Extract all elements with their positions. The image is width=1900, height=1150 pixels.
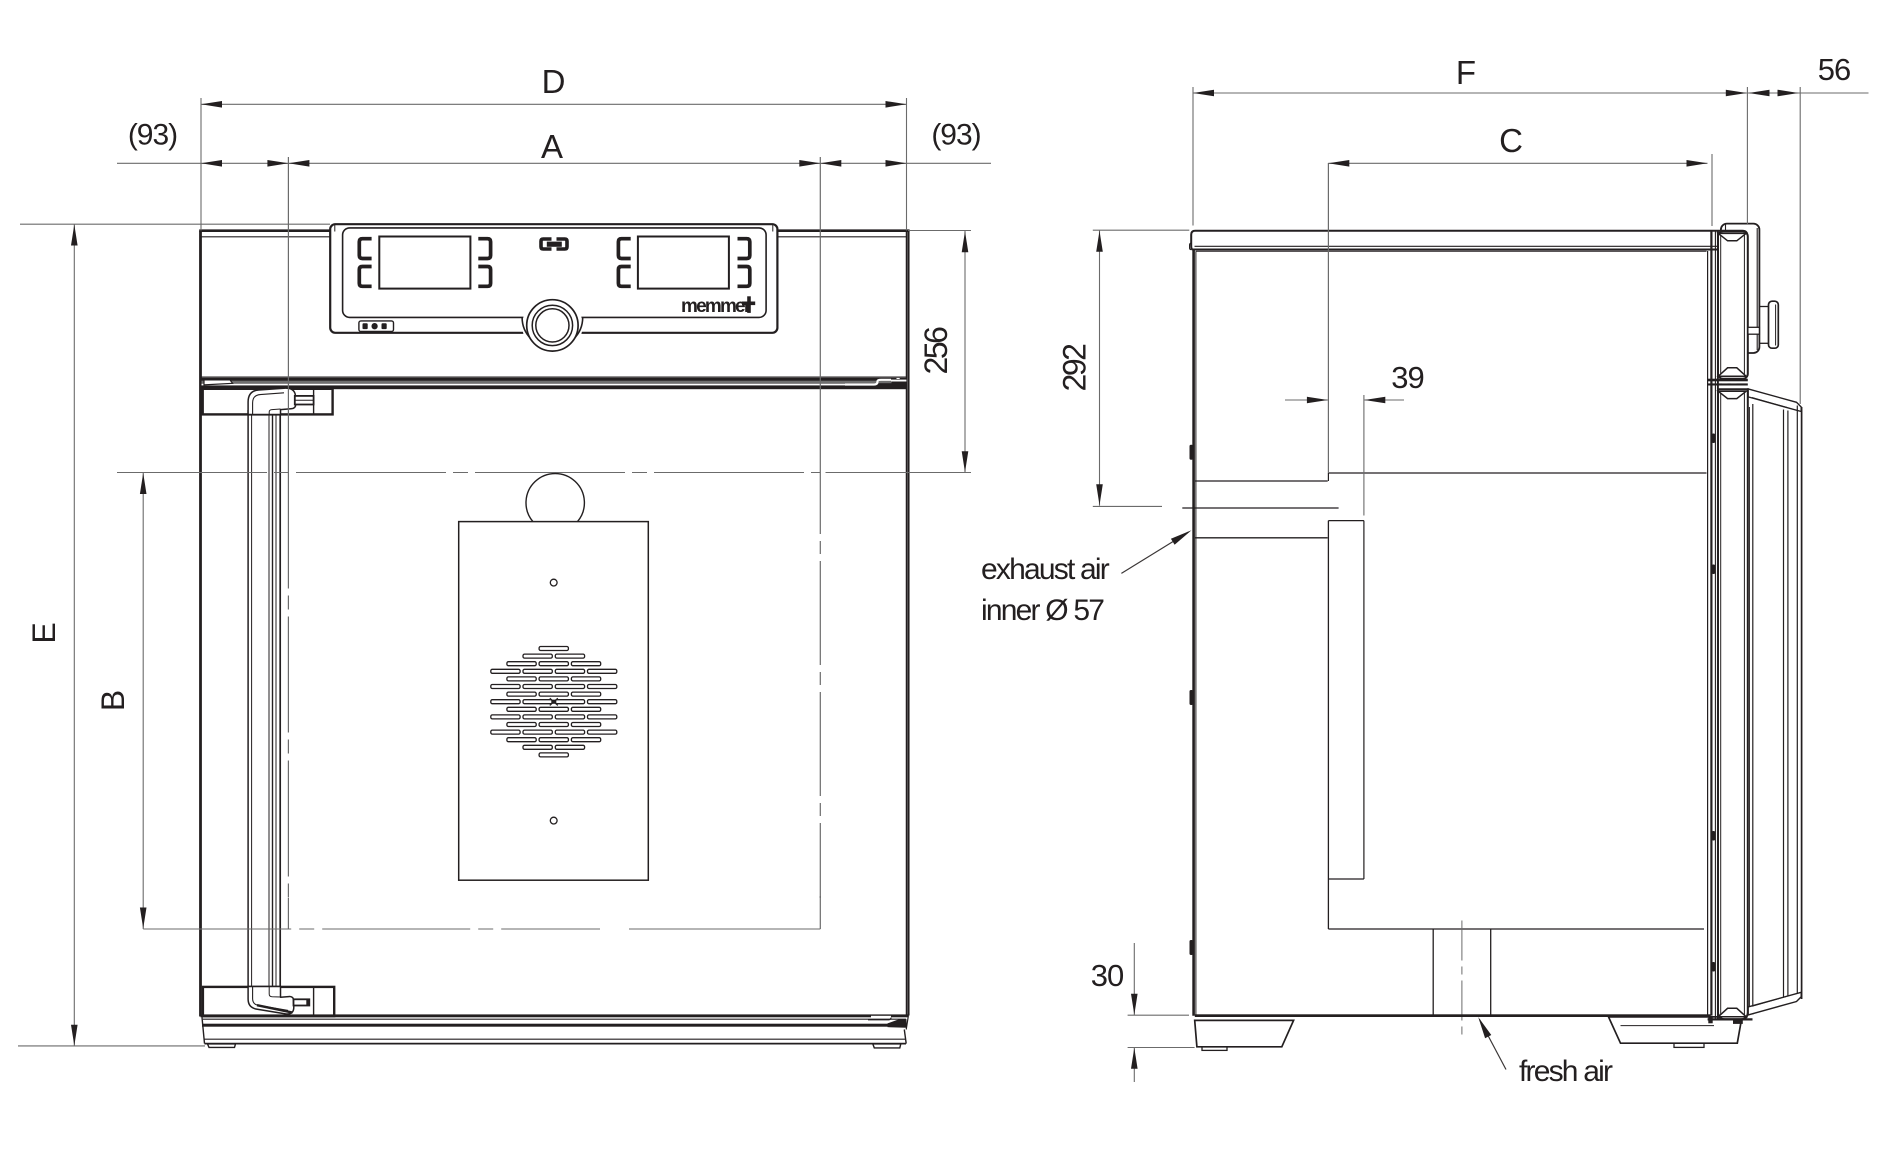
svg-text:fresh air: fresh air [1519, 1055, 1613, 1088]
svg-text:E: E [26, 622, 62, 643]
svg-text:39: 39 [1391, 360, 1423, 395]
svg-text:30: 30 [1091, 958, 1124, 993]
svg-text:inner Ø 57: inner Ø 57 [981, 594, 1104, 627]
svg-text:C: C [1499, 122, 1523, 159]
svg-text:292: 292 [1057, 344, 1093, 392]
svg-text:F: F [1456, 54, 1476, 91]
svg-text:A: A [541, 128, 563, 165]
svg-text:B: B [95, 690, 131, 711]
svg-text:56: 56 [1818, 52, 1850, 87]
svg-text:D: D [542, 63, 566, 100]
svg-text:exhaust air: exhaust air [981, 553, 1110, 586]
svg-text:256: 256 [918, 327, 954, 375]
svg-text:(93): (93) [931, 119, 980, 152]
svg-text:memmer: memmer [681, 296, 752, 317]
svg-text:(93): (93) [128, 119, 177, 152]
